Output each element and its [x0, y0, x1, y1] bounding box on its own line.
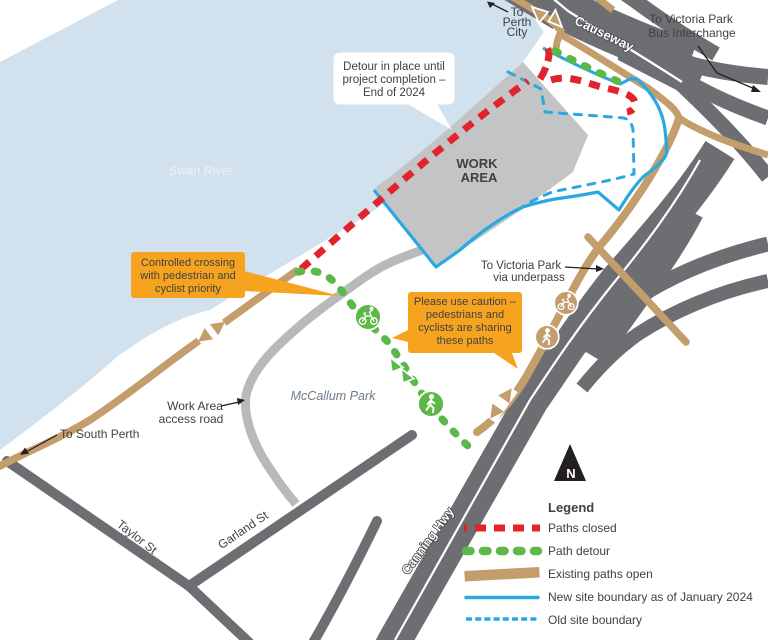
svg-text:Old site boundary: Old site boundary	[548, 613, 642, 627]
svg-text:Controlled crossing: Controlled crossing	[141, 257, 235, 269]
svg-text:Work Area: Work Area	[167, 399, 223, 413]
svg-text:access road: access road	[159, 412, 224, 426]
svg-text:with pedestrian and: with pedestrian and	[139, 270, 235, 282]
svg-text:McCallum Park: McCallum Park	[291, 389, 376, 403]
svg-text:Path detour: Path detour	[548, 544, 610, 558]
svg-text:End of 2024: End of 2024	[363, 87, 426, 99]
svg-text:Please use caution –: Please use caution –	[414, 296, 517, 308]
svg-text:Swan River: Swan River	[169, 164, 234, 178]
svg-text:Detour in place until: Detour in place until	[343, 61, 445, 73]
svg-text:via underpass: via underpass	[493, 272, 565, 284]
svg-text:Existing paths open: Existing paths open	[548, 567, 653, 581]
svg-text:project completion –: project completion –	[343, 74, 447, 86]
svg-text:Bus Interchange: Bus Interchange	[648, 26, 736, 40]
svg-text:AREA: AREA	[461, 170, 498, 185]
svg-text:City: City	[507, 25, 528, 39]
svg-text:Paths closed: Paths closed	[548, 521, 617, 535]
svg-text:To South Perth: To South Perth	[60, 427, 139, 441]
svg-text:WORK: WORK	[456, 156, 498, 171]
svg-text:New site boundary as of Januar: New site boundary as of January 2024	[548, 590, 753, 604]
svg-text:these paths: these paths	[437, 335, 494, 347]
svg-text:Legend: Legend	[548, 500, 594, 515]
svg-text:To Victoria Park: To Victoria Park	[481, 260, 562, 272]
svg-text:cyclist priority: cyclist priority	[155, 283, 222, 295]
svg-text:pedestrians and: pedestrians and	[426, 309, 504, 321]
svg-text:N: N	[566, 466, 575, 481]
svg-text:To Victoria Park: To Victoria Park	[649, 12, 734, 26]
svg-text:cyclists are sharing: cyclists are sharing	[418, 322, 512, 334]
